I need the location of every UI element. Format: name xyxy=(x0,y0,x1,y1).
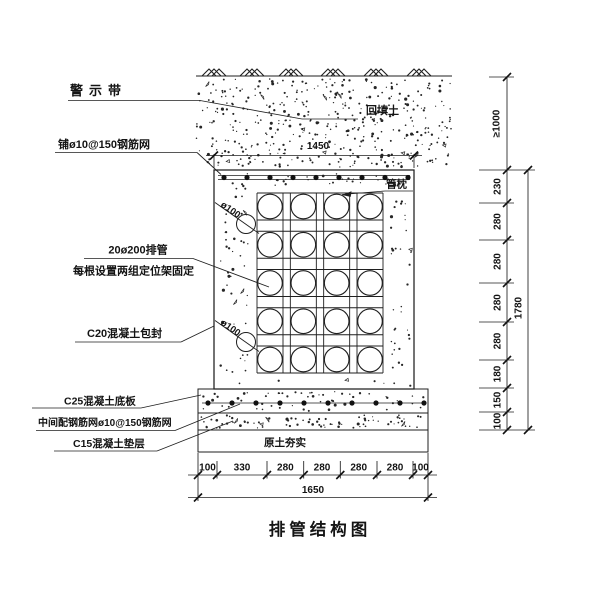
speckle-dot xyxy=(251,145,252,146)
speckle-dot xyxy=(324,427,325,428)
speckle-dot xyxy=(201,416,203,418)
speckle-dot xyxy=(405,124,407,126)
speckle-dot xyxy=(361,108,362,109)
speckle-dot xyxy=(255,95,256,96)
speckle-dot xyxy=(234,120,236,122)
speckle-dot xyxy=(392,161,394,163)
speckle-dot xyxy=(242,165,244,167)
speckle-dot xyxy=(337,113,339,115)
speckle-dot xyxy=(239,90,241,92)
dim-right-4: 280 xyxy=(493,332,504,349)
rebar-dot xyxy=(359,175,364,180)
speckle-dot xyxy=(321,79,323,81)
speckle-dot xyxy=(257,122,259,124)
speckle-dot xyxy=(295,418,297,420)
speckle-dot xyxy=(357,422,360,425)
speckle-dot xyxy=(216,149,217,150)
speckle-dot xyxy=(375,124,376,125)
speckle-dot xyxy=(283,105,284,106)
speckle-dot xyxy=(294,391,296,393)
speckle-dot xyxy=(309,132,311,134)
speckle-dot xyxy=(325,82,326,83)
speckle-dot xyxy=(371,135,373,137)
speckle-dot xyxy=(212,143,213,144)
ground-hatch xyxy=(202,69,226,76)
speckle-dot xyxy=(232,251,233,252)
speckle-dot xyxy=(306,100,308,102)
speckle-dot xyxy=(329,183,330,184)
speckle-dot xyxy=(248,157,250,159)
rebar-dot xyxy=(290,175,295,180)
speckle-dot xyxy=(430,143,432,145)
speckle-dot xyxy=(444,126,445,127)
speckle-dot xyxy=(303,115,305,117)
speckle-dot xyxy=(202,395,204,397)
rebar-dot xyxy=(325,400,330,405)
speckle-dot xyxy=(401,364,403,366)
speckle-dot xyxy=(358,103,360,105)
speckle-dot xyxy=(241,183,243,185)
speckle-dot xyxy=(392,249,395,252)
speckle-triangle xyxy=(401,152,405,155)
speckle-dot xyxy=(291,159,292,160)
speckle-dot xyxy=(393,165,394,166)
speckle-dot xyxy=(226,108,228,110)
speckle-dot xyxy=(307,114,309,116)
speckle-dot xyxy=(284,152,286,154)
speckle-dot xyxy=(390,215,393,218)
speckle-dot xyxy=(215,111,216,112)
dim-bottom-3: 280 xyxy=(314,463,331,474)
rebar-dot xyxy=(313,175,318,180)
speckle-dot xyxy=(309,392,311,394)
speckle-dot xyxy=(240,240,242,242)
speckle-dot xyxy=(312,395,315,398)
speckle-dot xyxy=(283,153,284,154)
speckle-triangle xyxy=(261,95,265,100)
speckle-dot xyxy=(374,141,376,143)
dim-right-0: 230 xyxy=(493,178,504,195)
speckle-dot xyxy=(287,176,288,177)
speckle-dot xyxy=(257,115,258,116)
speckle-dot xyxy=(341,93,343,95)
speckle-dot xyxy=(229,88,230,89)
speckle-triangle xyxy=(323,95,327,100)
speckle-dot xyxy=(273,143,275,145)
speckle-dot xyxy=(424,107,426,109)
speckle-dot xyxy=(210,92,212,94)
speckle-dot xyxy=(397,416,399,418)
speckle-dot xyxy=(240,255,242,257)
speckle-dot xyxy=(393,309,394,310)
speckle-dot xyxy=(427,161,429,163)
speckle-dot xyxy=(335,125,337,127)
speckle-dot xyxy=(246,133,248,135)
speckle-dot xyxy=(401,165,403,167)
speckle-dot xyxy=(218,165,219,166)
speckle-dot xyxy=(270,145,271,146)
speckle-dot xyxy=(431,159,433,161)
speckle-dot xyxy=(339,158,340,159)
speckle-dot xyxy=(441,121,443,123)
pipe-pillow-label: 管枕 xyxy=(386,178,407,191)
speckle-dot xyxy=(343,147,345,149)
speckle-dot xyxy=(377,137,379,139)
speckle-dot xyxy=(358,127,360,129)
speckle-dot xyxy=(289,140,291,142)
speckle-dot xyxy=(269,127,272,130)
speckle-dot xyxy=(285,183,287,185)
top-mesh-label: 铺ø10@150钢筋网 xyxy=(58,137,150,151)
speckle-dot xyxy=(219,427,221,429)
speckle-dot xyxy=(259,92,261,94)
speckle-dot xyxy=(278,148,280,150)
speckle-dot xyxy=(260,119,262,121)
speckle-dot xyxy=(341,424,342,425)
dim-right-5: 180 xyxy=(493,365,504,382)
speckle-dot xyxy=(368,393,370,395)
speckle-dot xyxy=(406,283,408,285)
speckle-dot xyxy=(409,157,410,158)
speckle-dot xyxy=(329,97,330,98)
speckle-dot xyxy=(425,117,426,118)
speckle-dot xyxy=(211,137,213,139)
speckle-dot xyxy=(368,96,371,99)
speckle-dot xyxy=(232,113,234,115)
speckle-dot xyxy=(409,426,410,427)
right-total-dimension: 1780 xyxy=(514,170,529,430)
speckle-dot xyxy=(308,421,310,423)
speckle-dot xyxy=(239,424,242,427)
speckle-dot xyxy=(396,83,398,85)
speckle-dot xyxy=(297,113,300,116)
speckle-dot xyxy=(384,161,386,163)
speckle-dot xyxy=(301,91,303,93)
speckle-dot xyxy=(283,110,286,113)
speckle-dot xyxy=(209,122,210,123)
speckle-dot xyxy=(233,130,234,131)
speckle-dot xyxy=(238,163,240,165)
speckle-dot xyxy=(381,149,383,151)
speckle-dot xyxy=(221,153,223,155)
speckle-dot xyxy=(390,140,392,142)
speckle-dot xyxy=(299,135,301,137)
speckle-dot xyxy=(386,397,388,399)
speckle-dot xyxy=(225,246,227,248)
speckle-dot xyxy=(302,102,303,103)
speckle-dot xyxy=(236,160,238,162)
speckle-dot xyxy=(230,293,232,295)
duct-pipe xyxy=(324,271,349,296)
speckle-dot xyxy=(288,114,290,116)
speckle-dot xyxy=(450,128,452,130)
slab-mesh-label: 中间配钢筋网ø10@150钢筋网 xyxy=(38,416,172,429)
speckle-dot xyxy=(212,84,214,86)
speckle-dot xyxy=(397,400,398,401)
speckle-dot xyxy=(226,369,228,371)
callout-base-slab: C25混凝土底板 xyxy=(32,395,201,409)
speckle-dot xyxy=(443,142,445,144)
speckle-dot xyxy=(407,95,409,97)
speckle-dot xyxy=(422,144,423,145)
speckle-dot xyxy=(337,426,340,429)
speckle-dot xyxy=(246,305,247,306)
speckle-dot xyxy=(196,123,198,125)
speckle-dot xyxy=(309,157,311,159)
speckle-dot xyxy=(245,323,247,325)
speckle-dot xyxy=(362,139,364,141)
rebar-dot xyxy=(244,175,249,180)
speckle-dot xyxy=(253,423,254,424)
speckle-dot xyxy=(417,165,418,166)
speckle-dot xyxy=(410,133,413,136)
speckle-dot xyxy=(307,396,309,398)
speckle-dot xyxy=(390,227,392,229)
duct-pipe xyxy=(258,309,283,334)
speckle-dot xyxy=(316,421,318,423)
speckle-dot xyxy=(242,88,243,89)
ground-hatch-marks xyxy=(202,69,431,76)
speckle-dot xyxy=(282,144,284,146)
speckle-dot xyxy=(447,155,449,157)
speckle-dot xyxy=(339,166,340,167)
speckle-dot xyxy=(394,329,396,331)
speckle-dot xyxy=(431,134,433,136)
rebar-dot xyxy=(277,400,282,405)
speckle-dot xyxy=(401,420,403,422)
speckle-dot xyxy=(390,421,392,423)
duct-pipe xyxy=(358,309,383,334)
speckle-dot xyxy=(423,109,425,111)
speckle-dot xyxy=(405,103,407,105)
speckle-dot xyxy=(302,419,304,421)
speckle-dot xyxy=(416,131,418,133)
speckle-dot xyxy=(255,122,256,123)
speckle-dot xyxy=(352,115,354,117)
speckle-dot xyxy=(360,182,361,183)
speckle-dot xyxy=(281,392,283,394)
speckle-dot xyxy=(217,112,218,113)
speckle-dot xyxy=(214,393,216,395)
speckle-dot xyxy=(330,423,332,425)
speckle-dot xyxy=(420,407,422,409)
speckle-dot xyxy=(323,424,324,425)
cushion-label: C15混凝土垫层 xyxy=(73,437,145,450)
speckle-dot xyxy=(282,80,284,82)
speckle-dot xyxy=(392,367,394,369)
speckle-dot xyxy=(292,80,294,82)
speckle-dot xyxy=(362,121,364,123)
speckle-dot xyxy=(393,157,394,158)
speckle-dot xyxy=(416,426,418,428)
speckle-dot xyxy=(254,159,255,160)
speckle-dot xyxy=(240,358,242,360)
speckle-dot xyxy=(288,125,291,128)
speckle-dot xyxy=(257,85,259,87)
speckle-dot xyxy=(301,145,303,147)
speckle-dot xyxy=(441,101,442,102)
speckle-dot xyxy=(274,164,276,166)
speckle-dot xyxy=(306,89,308,91)
speckle-dot xyxy=(427,127,429,129)
speckle-dot xyxy=(235,79,236,80)
speckle-dot xyxy=(332,400,334,402)
callout-pipes: 20ø200排管 每根设置两组定位架固定 xyxy=(73,243,269,288)
speckle-dot xyxy=(228,247,230,249)
speckle-dot xyxy=(381,92,383,94)
speckle-dot xyxy=(271,136,273,138)
speckle-dot xyxy=(314,133,316,135)
dim-right-total: 1780 xyxy=(514,296,525,319)
speckle-dot xyxy=(207,107,208,108)
rebar-dot xyxy=(421,400,426,405)
backfill-fill-texture xyxy=(196,78,452,168)
speckle-dot xyxy=(387,423,389,425)
speckle-dot xyxy=(373,420,374,421)
speckle-dot xyxy=(449,120,451,122)
dim-bottom-4: 280 xyxy=(350,463,367,474)
speckle-dot xyxy=(417,90,419,92)
speckle-dot xyxy=(352,180,354,182)
speckle-dot xyxy=(367,157,369,159)
speckle-dot xyxy=(267,88,269,90)
speckle-dot xyxy=(311,392,313,394)
dim-right-7: 100 xyxy=(493,412,504,429)
speckle-dot xyxy=(381,131,383,133)
speckle-dot xyxy=(421,108,422,109)
speckle-dot xyxy=(279,393,281,395)
speckle-dot xyxy=(325,137,326,138)
compacted-soil-box: 原土夯实 xyxy=(198,430,428,452)
speckle-dot xyxy=(398,348,400,350)
speckle-dot xyxy=(232,422,233,423)
speckle-dot xyxy=(446,136,448,138)
speckle-dot xyxy=(363,125,365,127)
speckle-dot xyxy=(404,79,406,81)
speckle-dot xyxy=(245,148,247,150)
speckle-dot xyxy=(270,122,273,125)
speckle-dot xyxy=(289,425,291,427)
speckle-dot xyxy=(235,196,238,199)
rebar-dot xyxy=(349,400,354,405)
speckle-triangle xyxy=(233,300,237,305)
speckle-dot xyxy=(208,99,210,101)
rebar-dot xyxy=(397,400,402,405)
speckle-dot xyxy=(226,414,228,416)
dim-bottom-1: 330 xyxy=(234,463,251,474)
speckle-dot xyxy=(225,239,227,241)
speckle-dot xyxy=(239,122,240,123)
speckle-dot xyxy=(377,122,378,123)
speckle-dot xyxy=(358,416,360,418)
rebar-dot xyxy=(336,175,341,180)
speckle-dot xyxy=(428,131,430,133)
speckle-dot xyxy=(296,90,297,91)
speckle-dot xyxy=(215,419,218,422)
dim-bottom-total: 1650 xyxy=(302,485,325,496)
speckle-dot xyxy=(349,149,351,151)
duct-pipe xyxy=(358,271,383,296)
speckle-dot xyxy=(318,156,320,158)
speckle-dot xyxy=(265,132,267,134)
speckle-dot xyxy=(420,416,422,418)
speckle-dot xyxy=(302,132,303,133)
speckle-dot xyxy=(405,203,406,204)
ground-hatch xyxy=(407,69,431,76)
speckle-dot xyxy=(222,113,224,115)
speckle-dot xyxy=(222,92,223,93)
speckle-dot xyxy=(247,243,248,244)
speckle-dot xyxy=(206,426,208,428)
speckle-dot xyxy=(296,157,298,159)
speckle-dot xyxy=(238,143,240,145)
speckle-dot xyxy=(398,362,400,364)
speckle-dot xyxy=(244,360,245,361)
speckle-dot xyxy=(359,392,361,394)
speckle-dot xyxy=(413,101,414,102)
duct-pipe xyxy=(258,232,283,257)
speckle-dot xyxy=(393,382,395,384)
base-slab-label: C25混凝土底板 xyxy=(64,395,136,408)
speckle-dot xyxy=(242,150,244,152)
speckle-dot xyxy=(269,105,271,107)
speckle-dot xyxy=(395,248,397,250)
speckle-dot xyxy=(291,85,293,87)
speckle-dot xyxy=(334,144,335,145)
speckle-dot xyxy=(400,162,401,163)
speckle-dot xyxy=(245,100,247,102)
speckle-dot xyxy=(236,87,238,89)
speckle-dot xyxy=(251,146,252,147)
speckle-dot xyxy=(286,424,288,426)
speckle-dot xyxy=(386,87,387,88)
speckle-dot xyxy=(234,141,236,143)
speckle-dot xyxy=(285,119,287,121)
speckle-dot xyxy=(262,426,264,428)
speckle-dot xyxy=(439,125,441,127)
speckle-dot xyxy=(428,83,430,85)
speckle-dot xyxy=(406,153,408,155)
speckle-dot xyxy=(203,408,204,409)
speckle-dot xyxy=(365,78,368,81)
speckle-dot xyxy=(352,128,354,130)
rebar-dot xyxy=(221,175,226,180)
speckle-dot xyxy=(333,102,334,103)
speckle-dot xyxy=(278,163,280,165)
speckle-dot xyxy=(254,88,256,90)
speckle-dot xyxy=(376,149,377,150)
callout-top-mesh: 铺ø10@150钢筋网 xyxy=(55,137,221,175)
speckle-dot xyxy=(342,81,343,82)
concrete-base-slab xyxy=(198,389,428,413)
speckle-dot xyxy=(303,408,305,410)
speckle-dot xyxy=(372,416,373,417)
speckle-dot xyxy=(239,383,241,385)
speckle-dot xyxy=(242,354,244,356)
speckle-dot xyxy=(380,159,382,161)
speckle-dot xyxy=(334,82,335,83)
bottom-total-dimension: 1650 xyxy=(188,485,437,498)
speckle-dot xyxy=(245,129,247,131)
speckle-dot xyxy=(336,173,338,175)
speckle-dot xyxy=(338,421,340,423)
speckle-dot xyxy=(312,138,314,140)
speckle-dot xyxy=(359,426,360,427)
speckle-dot xyxy=(417,415,419,417)
speckle-dot xyxy=(326,125,328,127)
speckle-dot xyxy=(401,200,403,202)
warning-tape-label: 警示带 xyxy=(70,83,127,98)
